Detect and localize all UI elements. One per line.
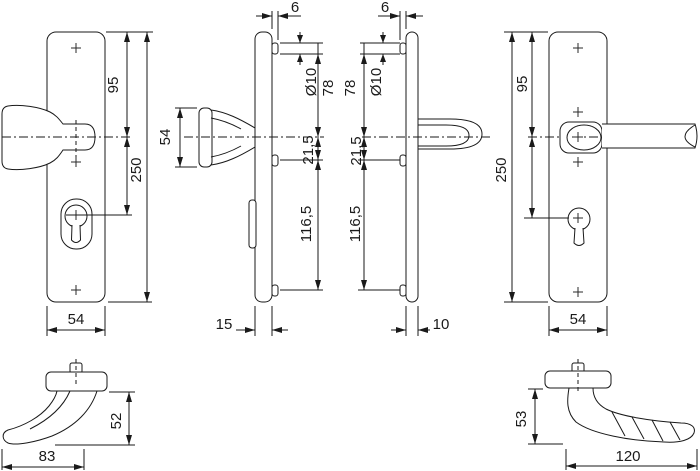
- dimension-lines: [512, 32, 532, 302]
- dim-label-53: 53: [513, 411, 530, 428]
- technical-drawing-page: 95 250 54 54 6 Ø10 78 21,5: [0, 0, 700, 471]
- dim-label-95: 95: [514, 76, 531, 93]
- dim-label-52: 52: [108, 413, 125, 430]
- dim-52-83: 52 83: [2, 392, 135, 470]
- dim-label-10: 10: [433, 316, 450, 333]
- dim-label-6: 6: [291, 0, 299, 16]
- plate-section: [406, 32, 418, 302]
- cylinder-cover-hump: [249, 200, 256, 248]
- arrowheads: [390, 13, 416, 19]
- dim-label-95: 95: [105, 77, 122, 94]
- dim-label-116-5: 116,5: [298, 206, 315, 242]
- dim-label-250: 250: [493, 157, 510, 182]
- dim-label-6: 6: [381, 0, 389, 16]
- cylinder-keyway: [72, 225, 81, 243]
- dim-label-21-5: 21,5: [348, 136, 365, 165]
- plate-section: [255, 32, 272, 302]
- fixing-stud-mid: [272, 155, 278, 166]
- dim-label-15: 15: [216, 316, 233, 333]
- view-lever-plate-side: 6 Ø10 78 21,5 116,5 10: [342, 0, 492, 336]
- lever-grip-end-view: [418, 119, 482, 149]
- fixing-stud-mid: [400, 155, 406, 166]
- dim-label-d10: Ø10: [368, 68, 385, 96]
- dim-plate-depth-10: 10: [391, 306, 449, 336]
- fixing-stud-bottom: [272, 285, 278, 296]
- arrowheads: [262, 13, 288, 19]
- dim-label-83: 83: [39, 448, 56, 465]
- view-knob-plate-front: 95 250 54: [2, 32, 153, 336]
- dim-label-78: 78: [342, 80, 359, 97]
- arrowheads: [396, 327, 428, 333]
- dim-label-250: 250: [128, 157, 145, 182]
- arrowheads: [245, 327, 282, 333]
- view-knob-profile: 52 83: [2, 359, 135, 470]
- fixing-stud-top: [400, 43, 406, 54]
- dim-chain-left: Ø10 78 21,5 116,5: [342, 32, 400, 290]
- dim-label-54: 54: [157, 129, 174, 146]
- knob-body-profile: [3, 391, 97, 444]
- dim-label-120: 120: [615, 448, 640, 465]
- view-lever-profile: 53 120: [513, 359, 697, 470]
- dim-label-d10: Ø10: [303, 68, 320, 96]
- dim-chain-right: Ø10 78 21,5 116,5: [280, 32, 337, 290]
- view-lever-plate-front: 95 250 54: [493, 32, 697, 336]
- fixing-stud-top: [272, 43, 278, 54]
- arrowheads: [509, 32, 535, 302]
- knob-body-contour: [30, 391, 70, 429]
- cylinder-keyway: [574, 228, 584, 246]
- view-knob-plate-side: 54 6 Ø10 78 21,5 116,5 15: [157, 0, 337, 336]
- dim-label-116-5: 116,5: [347, 206, 364, 242]
- dim-label-78: 78: [320, 80, 337, 97]
- lever-grip-profile: [568, 388, 695, 442]
- lever-bar: [602, 124, 697, 148]
- dim-label-21-5: 21,5: [300, 135, 317, 164]
- door-fitting-drawing: 95 250 54 54 6 Ø10 78 21,5: [0, 0, 700, 471]
- fixing-stud-bottom: [400, 285, 406, 296]
- dim-plate-depth-15: 15: [216, 306, 288, 336]
- dim-label-54: 54: [570, 311, 587, 328]
- dim-label-54: 54: [68, 311, 85, 328]
